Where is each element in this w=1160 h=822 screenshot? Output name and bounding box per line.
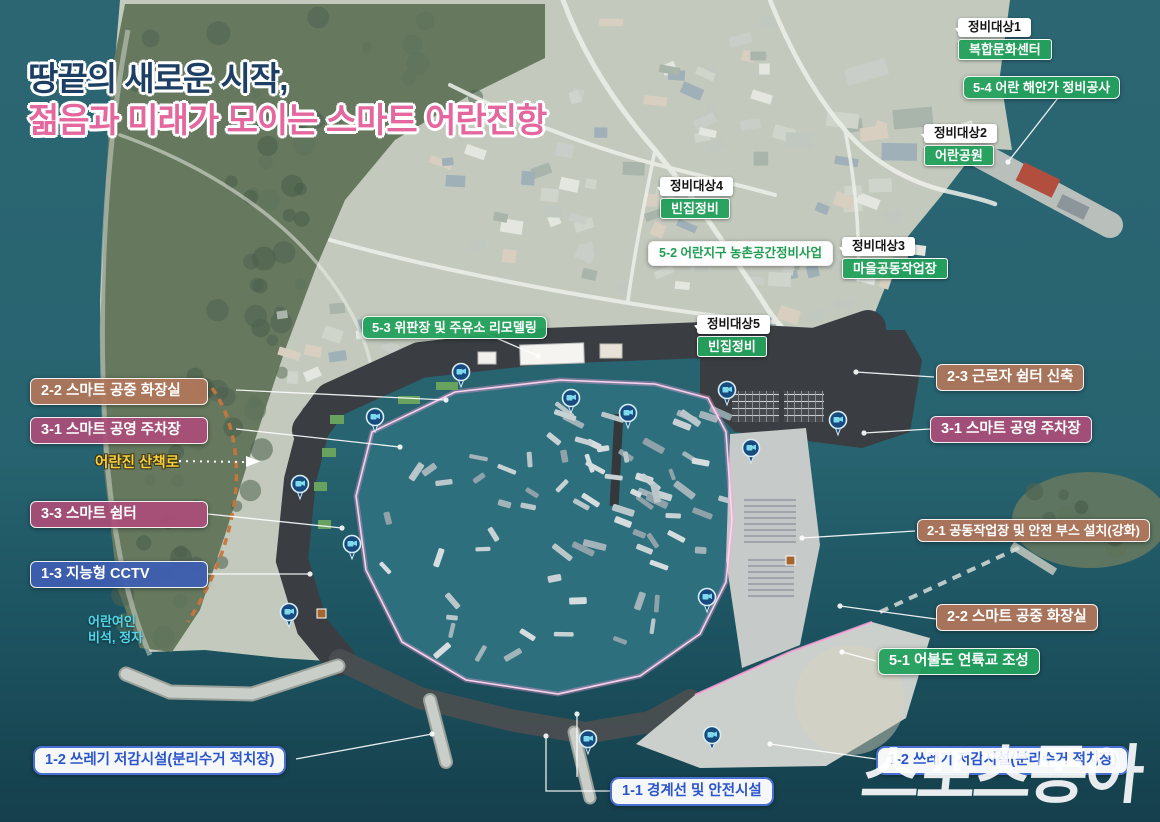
trail-label: 어란진 산책로 <box>95 451 179 472</box>
label-boundary-safety: 1-1 경계선 및 안전시설 <box>610 777 774 806</box>
renovation-target-5: 정비대상5 빈집정비 <box>697 315 770 357</box>
renovation-target-5-value: 빈집정비 <box>697 336 767 357</box>
label-smart-toilet-left: 2-2 스마트 공중 화장실 <box>30 378 208 405</box>
label-joint-workplace-booth: 2-1 공동작업장 및 안전 부스 설치(강화) <box>917 519 1150 542</box>
renovation-target-5-tag: 정비대상5 <box>697 315 770 334</box>
page-title: 땅끝의 새로운 시작, 젊음과 미래가 모이는 스마트 어란진항 <box>28 58 546 144</box>
label-smart-cctv: 1-3 지능형 CCTV <box>30 561 208 588</box>
renovation-target-1-value: 복합문화센터 <box>958 39 1052 60</box>
label-fishmarket-remodeling: 5-3 위판장 및 주유소 리모델링 <box>362 316 547 339</box>
renovation-target-1: 정비대상1 복합문화센터 <box>958 18 1052 60</box>
monument-line-1: 어란여인 <box>88 614 143 630</box>
label-smart-toilet-right: 2-2 스마트 공중 화장실 <box>936 604 1098 631</box>
label-smart-parking-right: 3-1 스마트 공영 주차장 <box>930 416 1092 443</box>
title-line-1: 땅끝의 새로운 시작, <box>28 58 546 100</box>
press-watermark: 스포츠동아 <box>857 724 1146 816</box>
renovation-target-2: 정비대상2 어란공원 <box>924 124 997 166</box>
renovation-target-1-tag: 정비대상1 <box>958 18 1031 37</box>
label-worker-shelter: 2-3 근로자 쉼터 신축 <box>936 364 1084 391</box>
label-rural-space-project: 5-2 어란지구 농촌공간정비사업 <box>648 241 833 266</box>
label-coastal-improvement: 5-4 어란 해안가 정비공사 <box>963 76 1120 99</box>
monument-label: 어란여인 비석, 정자 <box>88 614 143 647</box>
renovation-target-3: 정비대상3 마을공동작업장 <box>842 237 948 279</box>
label-smart-shelter: 3-3 스마트 쉼터 <box>30 501 208 528</box>
renovation-target-2-tag: 정비대상2 <box>924 124 997 143</box>
renovation-target-3-tag: 정비대상3 <box>842 237 915 256</box>
renovation-target-3-value: 마을공동작업장 <box>842 258 948 279</box>
renovation-target-2-value: 어란공원 <box>924 145 994 166</box>
renovation-target-4: 정비대상4 빈집정비 <box>660 177 733 219</box>
label-smart-parking-left: 3-1 스마트 공영 주차장 <box>30 417 208 444</box>
monument-line-2: 비석, 정자 <box>88 630 143 646</box>
label-island-bridge: 5-1 어불도 연륙교 조성 <box>878 648 1040 675</box>
aerial-masterplan-map: 땅끝의 새로운 시작, 젊음과 미래가 모이는 스마트 어란진항 정비대상1 복… <box>0 0 1160 822</box>
label-waste-reduction-left: 1-2 쓰레기 저감시설(분리수거 적치장) <box>33 746 286 775</box>
title-line-2: 젊음과 미래가 모이는 스마트 어란진항 <box>28 100 546 144</box>
renovation-target-4-value: 빈집정비 <box>660 198 730 219</box>
renovation-target-4-tag: 정비대상4 <box>660 177 733 196</box>
